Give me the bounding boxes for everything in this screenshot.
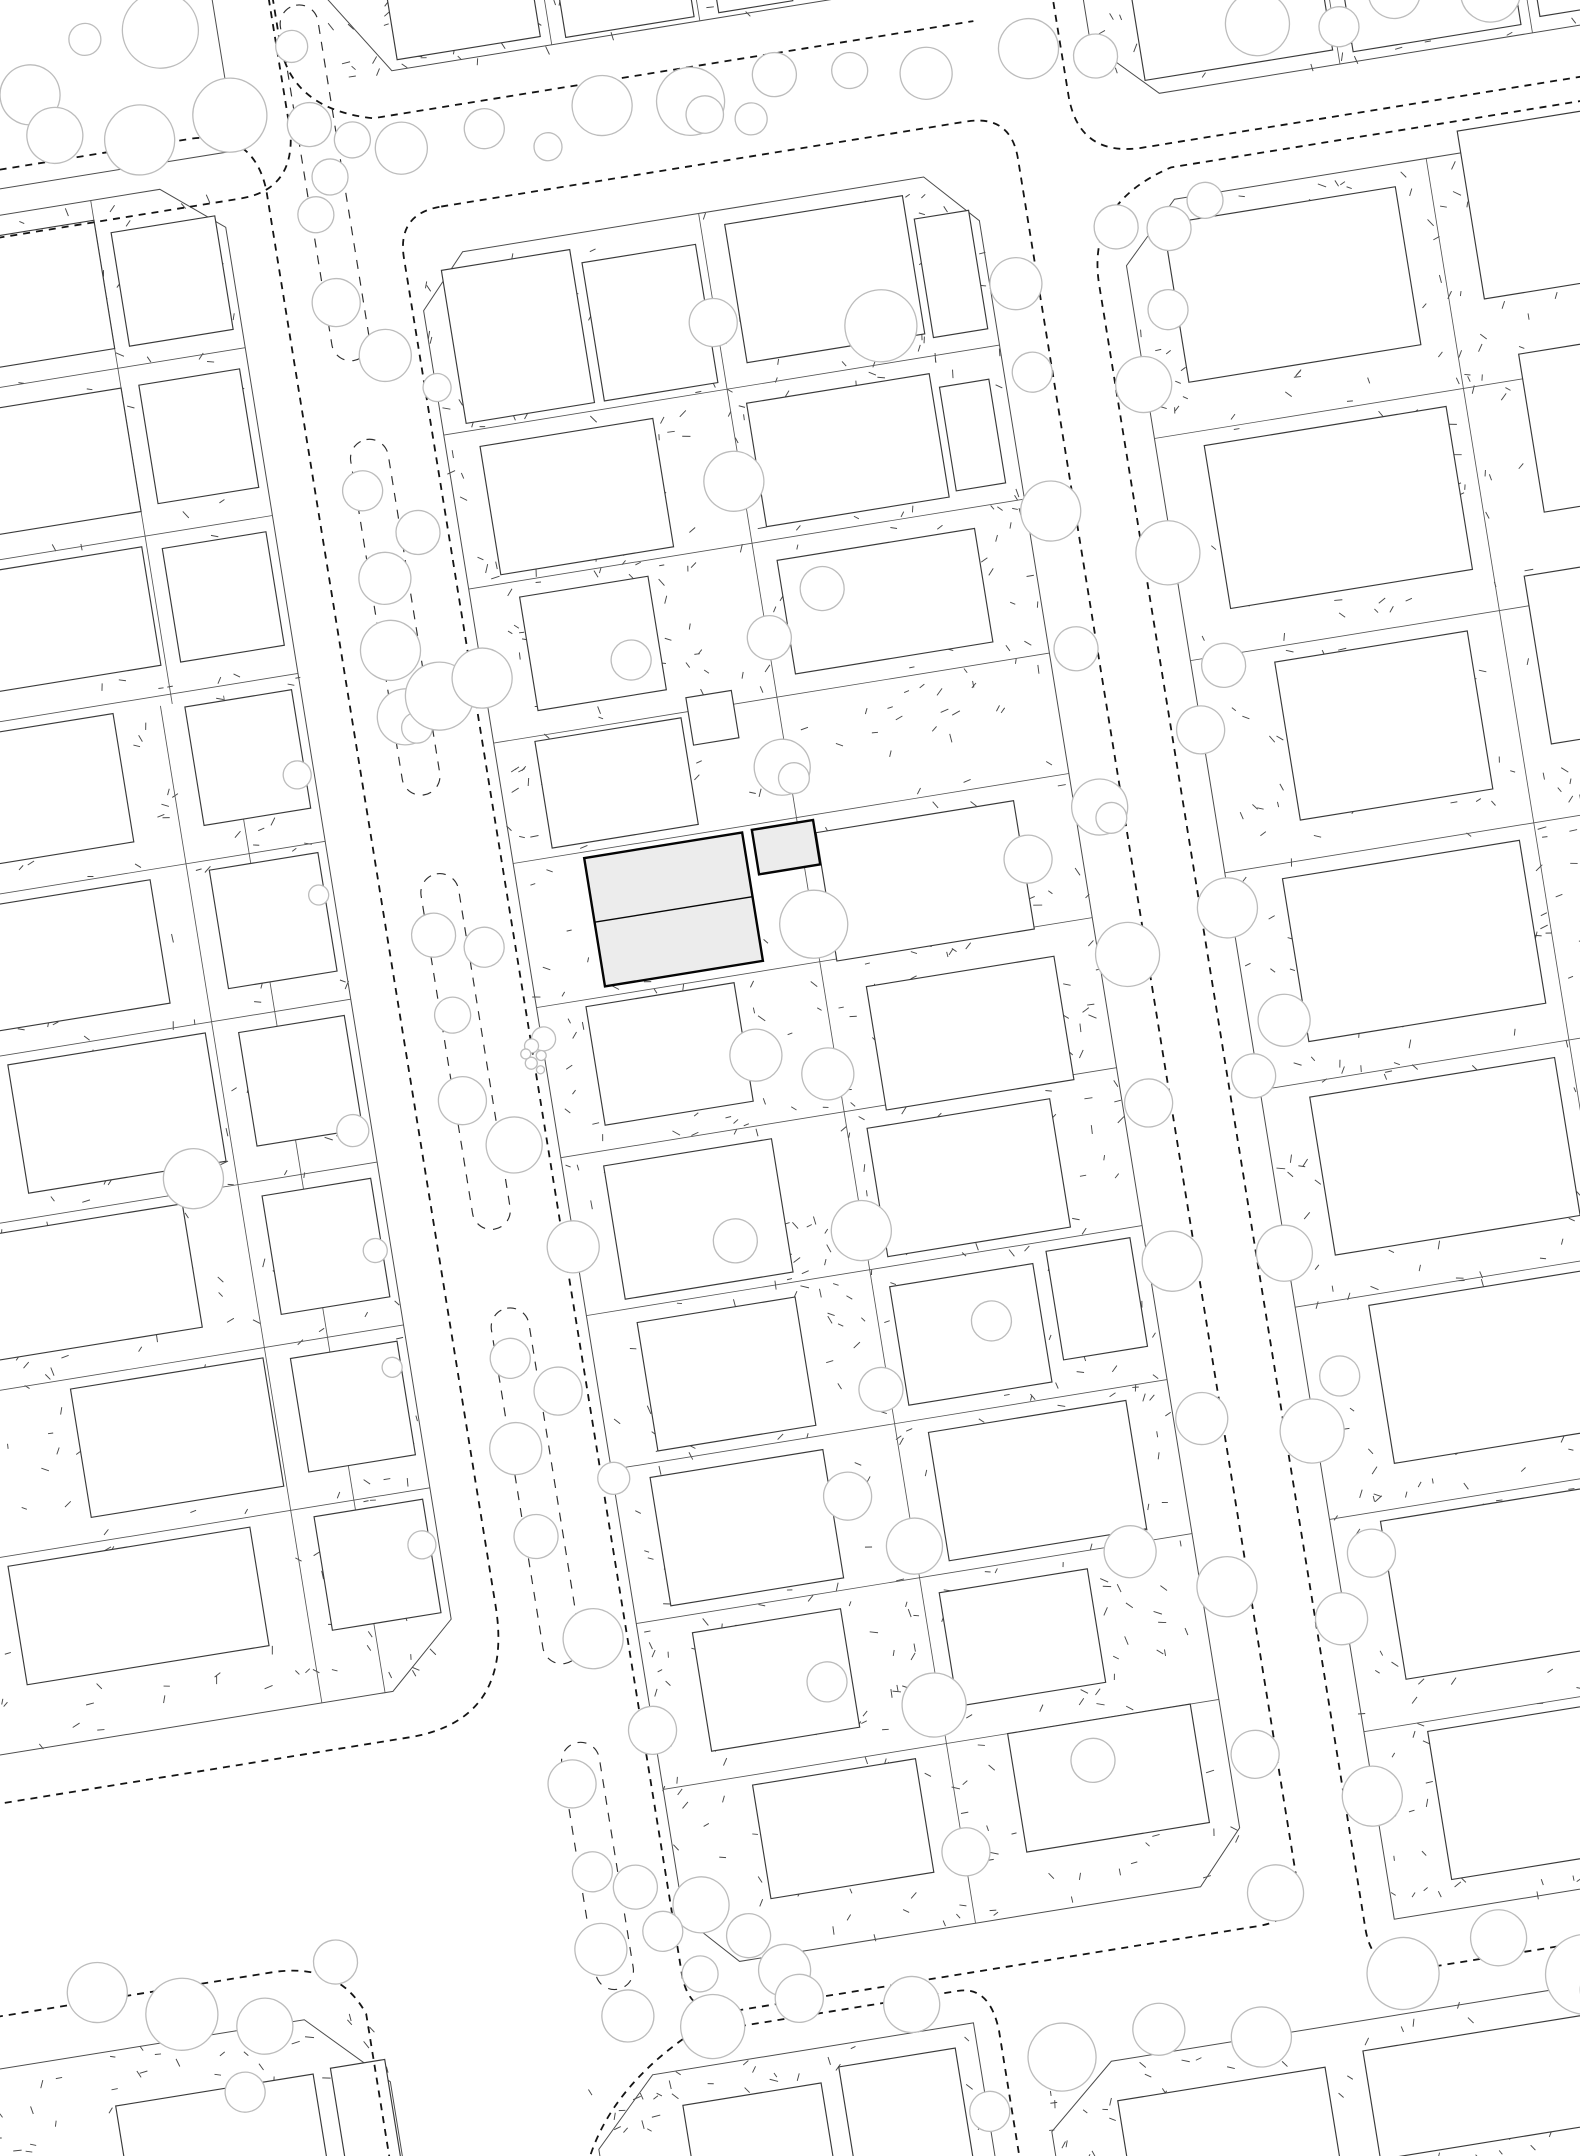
tree-icon <box>829 50 870 91</box>
building-footprint <box>0 714 134 881</box>
tree-icon <box>856 1364 906 1414</box>
tree-icon <box>1227 2003 1296 2072</box>
building-footprint <box>0 388 141 541</box>
tree-icon <box>372 118 432 178</box>
tree-icon <box>233 1994 297 2058</box>
tree-icon <box>1362 1932 1445 2015</box>
building-footprint <box>1008 1704 1210 1852</box>
tree-icon <box>408 910 458 960</box>
tree-icon <box>1023 2018 1101 2096</box>
building-footprint <box>1428 1695 1580 1879</box>
building-footprint <box>704 0 793 13</box>
tree-icon <box>994 14 1063 83</box>
tree-icon <box>1016 477 1085 546</box>
building-footprint <box>535 718 698 848</box>
tree-icon <box>309 275 364 330</box>
tree-icon <box>531 1364 586 1419</box>
tree-icon <box>1131 516 1204 589</box>
building-footprint <box>867 1099 1070 1257</box>
tree-icon <box>938 1824 993 1879</box>
tree-icon <box>1173 702 1228 757</box>
tree-icon <box>141 1973 224 2056</box>
building-footprint <box>0 880 170 1040</box>
building-footprint <box>1204 406 1472 608</box>
building-footprint <box>1046 1238 1147 1360</box>
building-footprint <box>939 379 1005 491</box>
tree-icon <box>967 2088 1013 2134</box>
site-plan <box>0 0 1580 2156</box>
building-footprint <box>683 2083 840 2156</box>
building-footprint <box>1275 631 1493 820</box>
building-footprint <box>0 547 161 693</box>
building-footprint <box>441 250 594 424</box>
building-footprint <box>8 1527 269 1685</box>
tree-icon <box>1312 1589 1372 1649</box>
tree-icon <box>598 1986 658 2046</box>
tree-icon <box>295 194 336 235</box>
tree-icon <box>536 1065 545 1074</box>
tree-icon <box>487 1335 533 1381</box>
tree-icon <box>435 1073 490 1128</box>
building-footprint <box>939 1569 1105 1707</box>
building-footprint <box>747 374 950 527</box>
building-footprint <box>520 576 667 710</box>
tree-icon <box>187 73 272 158</box>
building-footprint <box>0 220 115 380</box>
building-footprint <box>604 1139 793 1299</box>
tree-icon <box>511 1511 561 1561</box>
tree-icon <box>310 1937 360 1987</box>
building-footprint <box>1369 1271 1580 1463</box>
tree-icon <box>1172 1389 1232 1449</box>
tree-icon <box>309 156 350 197</box>
tree-icon <box>896 43 956 103</box>
building-footprint <box>111 216 233 346</box>
building-footprint <box>914 210 987 337</box>
site-plan-page <box>0 0 1580 2156</box>
tree-icon <box>117 0 204 74</box>
tree-icon <box>273 28 310 65</box>
project-annex-building <box>752 820 820 874</box>
tree-icon <box>393 507 443 557</box>
tree-icon <box>1540 1928 1580 2020</box>
building-footprint <box>1457 85 1580 299</box>
building-footprint <box>547 0 694 37</box>
tree-icon <box>100 100 180 180</box>
building-footprint <box>185 690 311 826</box>
tree-icon <box>482 1113 546 1177</box>
tree-icon <box>1317 1353 1363 1399</box>
building-footprint <box>586 983 753 1125</box>
building-footprint <box>890 1264 1052 1406</box>
building-footprint <box>1519 312 1580 512</box>
tree-icon <box>880 1972 944 2036</box>
tree-icon <box>461 106 507 152</box>
building-footprint <box>70 1358 283 1518</box>
tree-icon <box>569 1849 615 1895</box>
tree-icon <box>532 131 564 163</box>
tree-icon <box>545 1756 600 1811</box>
rotated-plan-group <box>0 0 1580 2156</box>
tree-icon <box>1121 1075 1176 1130</box>
tree-icon <box>1275 1394 1348 1467</box>
building-footprint <box>1524 528 1580 744</box>
building-footprint <box>480 418 674 574</box>
building-footprint <box>1118 0 1333 80</box>
tree-icon <box>1252 1221 1316 1285</box>
tree-icon <box>1009 349 1055 395</box>
tree-icon <box>340 468 386 514</box>
tree-icon <box>733 101 770 138</box>
tree-icon <box>571 1920 631 1980</box>
tree-icon <box>355 326 415 386</box>
building-footprint <box>753 1759 934 1899</box>
tree-icon <box>461 924 507 970</box>
tree-icon <box>63 1958 132 2027</box>
building-footprint <box>139 369 259 504</box>
tree-icon <box>882 1514 946 1578</box>
tree-icon <box>676 1990 749 2063</box>
tree-icon <box>355 549 415 609</box>
building-footprint <box>686 690 739 745</box>
tree-icon <box>798 1044 858 1104</box>
building-footprint <box>816 801 1034 961</box>
building-footprint <box>0 1204 202 1367</box>
tree-icon <box>284 99 334 149</box>
tree-icon <box>1091 202 1141 252</box>
building-footprint <box>1118 2067 1341 2156</box>
tree-icon <box>1112 352 1176 416</box>
building-footprint <box>162 532 284 662</box>
building-footprint <box>314 1499 441 1630</box>
building-footprint <box>330 2059 402 2156</box>
tree-icon <box>1070 31 1120 81</box>
building-footprint <box>637 1297 816 1451</box>
buildings-layer <box>0 0 1580 2156</box>
tree-icon <box>332 119 373 160</box>
tree-icon <box>568 71 637 140</box>
building-footprint <box>1363 2014 1580 2156</box>
tree-icon <box>67 21 104 58</box>
building-footprint <box>839 2048 976 2156</box>
tree-icon <box>1138 1227 1207 1296</box>
tree-icon <box>1198 640 1248 690</box>
tree-icon <box>543 1217 603 1277</box>
tree-icon <box>1228 1727 1283 1782</box>
tree-icon <box>595 1460 632 1497</box>
building-footprint <box>209 853 337 989</box>
tree-icon <box>1228 1051 1278 1101</box>
tree-icon <box>432 994 473 1035</box>
tree-icon <box>486 1419 546 1479</box>
building-footprint <box>1380 1482 1580 1679</box>
tree-icon <box>986 254 1046 314</box>
building-footprint <box>650 1450 844 1606</box>
building-footprint <box>866 956 1074 1110</box>
tree-icon <box>625 1703 680 1758</box>
building-footprint <box>1282 840 1545 1041</box>
building-footprint <box>1310 1057 1580 1255</box>
tree-icon <box>1243 1861 1307 1925</box>
tree-icon <box>1193 1552 1262 1621</box>
building-footprint <box>1516 0 1580 16</box>
